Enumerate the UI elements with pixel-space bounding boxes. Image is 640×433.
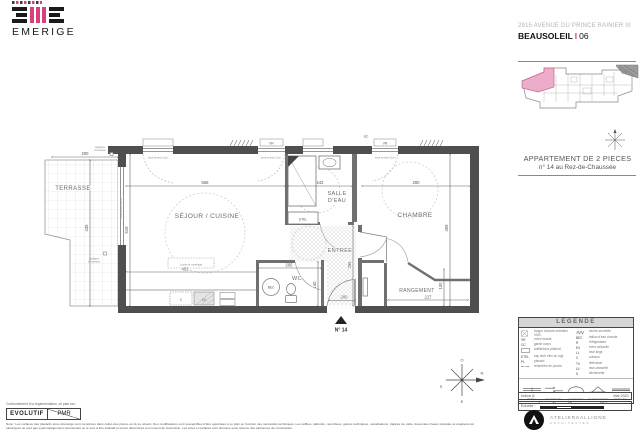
dim-rangement-height: 100 — [438, 282, 443, 290]
scale-label: Echelle : — [521, 404, 536, 408]
svg-text:lumineuse: lumineuse — [88, 260, 100, 264]
bedroom-door-leaf — [360, 232, 387, 237]
entry-arrow-icon — [335, 316, 347, 324]
evolutif-box: EVOLUTIF — [6, 408, 48, 420]
legend: LEGENDE trappe d'accès entretien VMC VR … — [518, 317, 634, 404]
legend-column-left: trappe d'accès entretien VMC VR volet ro… — [521, 330, 574, 377]
washbasin — [319, 156, 340, 169]
guardrail-label: GC — [364, 134, 369, 138]
compass-rose: O S N E — [440, 358, 485, 405]
storage-sloped-wall — [408, 263, 470, 280]
architect-logo-icon — [524, 410, 544, 430]
unit-number: N° 14 — [335, 328, 348, 334]
floor-plan-drawing: VR VR GC — [30, 128, 490, 410]
threshold-note: seuil environ 2cm — [148, 156, 168, 160]
room-label-chambre: CHAMBRE — [397, 212, 433, 219]
print-calibration-marks — [12, 1, 42, 4]
dim-entree-height: 295 — [347, 261, 352, 269]
compass-south: S — [440, 384, 443, 389]
soffite-icon — [521, 348, 532, 353]
wall-light-symbol — [104, 252, 107, 255]
revision-row: Indice A Mai 2021 — [518, 392, 632, 400]
department: 06 — [579, 31, 588, 41]
city-line: BEAUSOLEILI06 — [518, 31, 638, 41]
legend-item: soffite/faux plafond — [521, 348, 574, 353]
legend-item: K kitchenette — [576, 372, 632, 376]
threshold-note: seuil environ 2cm — [261, 156, 281, 160]
architect-name: ATELIERSALLIONE — [550, 416, 607, 421]
tiling-limit-label: Limite de carrelage — [180, 262, 203, 266]
legend-item: EV évier vaisselle — [576, 346, 632, 350]
legend-item: trappe d'accès entretien VMC — [521, 330, 574, 337]
dim-porte: 200 — [341, 295, 349, 300]
bec-label: BEC — [268, 285, 275, 289]
compass-west: O — [460, 358, 463, 363]
roller-shutter-label: VR — [383, 142, 388, 146]
dim-sejour-height: 519 — [124, 226, 129, 234]
site-compass-icon — [604, 129, 626, 151]
kitchen-sink — [220, 293, 235, 299]
emerige-logo-glyph — [12, 7, 76, 23]
compass-east: E — [461, 399, 464, 404]
trappe-icon — [521, 330, 532, 337]
legend-item: LV lave-vaisselle — [576, 367, 632, 371]
room-label-wc: WC — [292, 276, 302, 282]
architect-block: ATELIERSALLIONE ARCHITECTES — [524, 410, 607, 430]
dim-terrasse-width: 200 — [82, 151, 90, 156]
legend-item: retombée de poutre — [521, 365, 574, 369]
legend-item: LL lave-linge — [576, 351, 632, 355]
disclaimer-note: Nota : Les surfaces des placards et/ou d… — [6, 422, 474, 431]
legend-item: TV télévision — [576, 362, 632, 366]
divider — [518, 175, 636, 176]
legend-title: LEGENDE — [519, 318, 633, 328]
legend-item: C cuisson — [576, 356, 632, 360]
dim-sejour-width: 558 — [202, 180, 210, 185]
site-key-plan — [514, 63, 640, 123]
dim-wc-height: 140 — [312, 281, 317, 289]
toilet — [287, 284, 296, 295]
plan-sheet: EMERIGE 2915 AVENUE DU PRINCE RAINIER II… — [0, 0, 640, 433]
legend-column-right: sèche-serviette BEC ballon d'eau chaude … — [576, 330, 632, 377]
project-address: 2915 AVENUE DU PRINCE RAINIER III BEAUSO… — [518, 23, 638, 41]
beam-drop-icon — [521, 365, 532, 368]
apartment-title: APPARTEMENT DE 2 PIECES — [505, 154, 640, 163]
brand-name: EMERIGE — [12, 26, 76, 38]
room-label-sejour: SÉJOUR / CUISINE — [175, 211, 240, 220]
dim-salle-eau-width: 242 — [317, 180, 325, 185]
room-label-terrasse: TERRASSE — [55, 186, 91, 192]
dim-chambre-width: 280 — [413, 180, 421, 185]
svg-text:lumineuse: lumineuse — [94, 148, 106, 152]
dim-rangement-width: 217 — [425, 294, 433, 299]
room-label-salle-eau: D'EAU — [328, 198, 346, 204]
divider — [518, 61, 636, 62]
conformity-note: Conformément à la réglementation, ce pla… — [6, 402, 76, 406]
legend-item: ETEL esp tech elec du logt — [521, 355, 574, 359]
threshold-note: seuil environ 2cm — [375, 156, 395, 160]
compass-north: N — [481, 371, 484, 376]
room-label-salle-eau: SALLE — [327, 191, 346, 197]
threshold-note: seuil environ 2cm — [119, 198, 123, 218]
dim-chambre-height: 409 — [444, 224, 449, 232]
emerige-logo: EMERIGE — [12, 7, 76, 38]
etel-label: ETEL — [299, 217, 307, 221]
wall-light-symbol — [110, 153, 113, 156]
dim-terrasse-height: 435 — [84, 224, 89, 232]
radiator — [363, 278, 368, 296]
dim-carrelage: 453 — [182, 266, 190, 271]
entry-marker: N° 14 — [335, 316, 348, 334]
room-label-entree: ENTRÉE — [328, 247, 353, 254]
city-name: BEAUSOLEIL — [518, 31, 573, 41]
revision-date: Mai 2021 — [613, 394, 629, 398]
terrace-area — [45, 160, 118, 306]
highlighted-unit-14 — [522, 68, 554, 92]
north-arrow-icon — [476, 378, 485, 383]
room-label-rangement: RANGEMENT — [399, 288, 435, 294]
revision-index: Indice A — [521, 394, 535, 398]
apartment-subtitle: n° 14 au Rez-de-Chaussée — [505, 164, 640, 171]
scale-bar: 0 50 100 200cm — [540, 402, 612, 410]
architect-subtitle: ARCHITECTES — [550, 422, 607, 425]
address-line: 2915 AVENUE DU PRINCE RAINIER III — [518, 23, 638, 29]
towel-dryer-icon — [576, 330, 587, 335]
dim-wc-width: 205 — [286, 262, 294, 267]
dimension-values: 200 435 519 558 242 280 409 295 205 140 … — [82, 151, 450, 299]
roller-shutter-label: VR — [269, 142, 274, 146]
pmr-box-crossed: PMR — [47, 408, 81, 420]
